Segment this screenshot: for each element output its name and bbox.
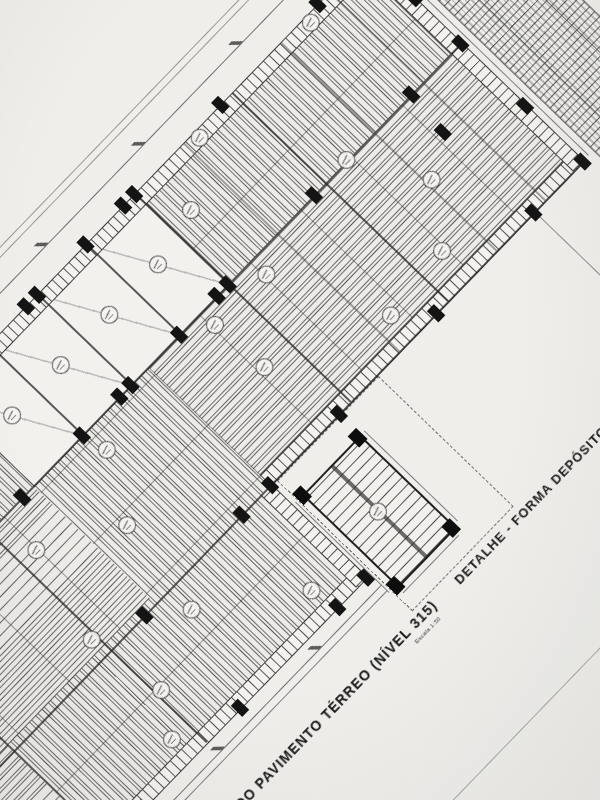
photographed-drawing-sheet: FORMA DO PAVIMENTO TÉRREO (NÍVEL 315) Es… [0,0,600,800]
extension-line [534,211,600,323]
drawing-sheet-rotated: FORMA DO PAVIMENTO TÉRREO (NÍVEL 315) Es… [0,0,600,800]
